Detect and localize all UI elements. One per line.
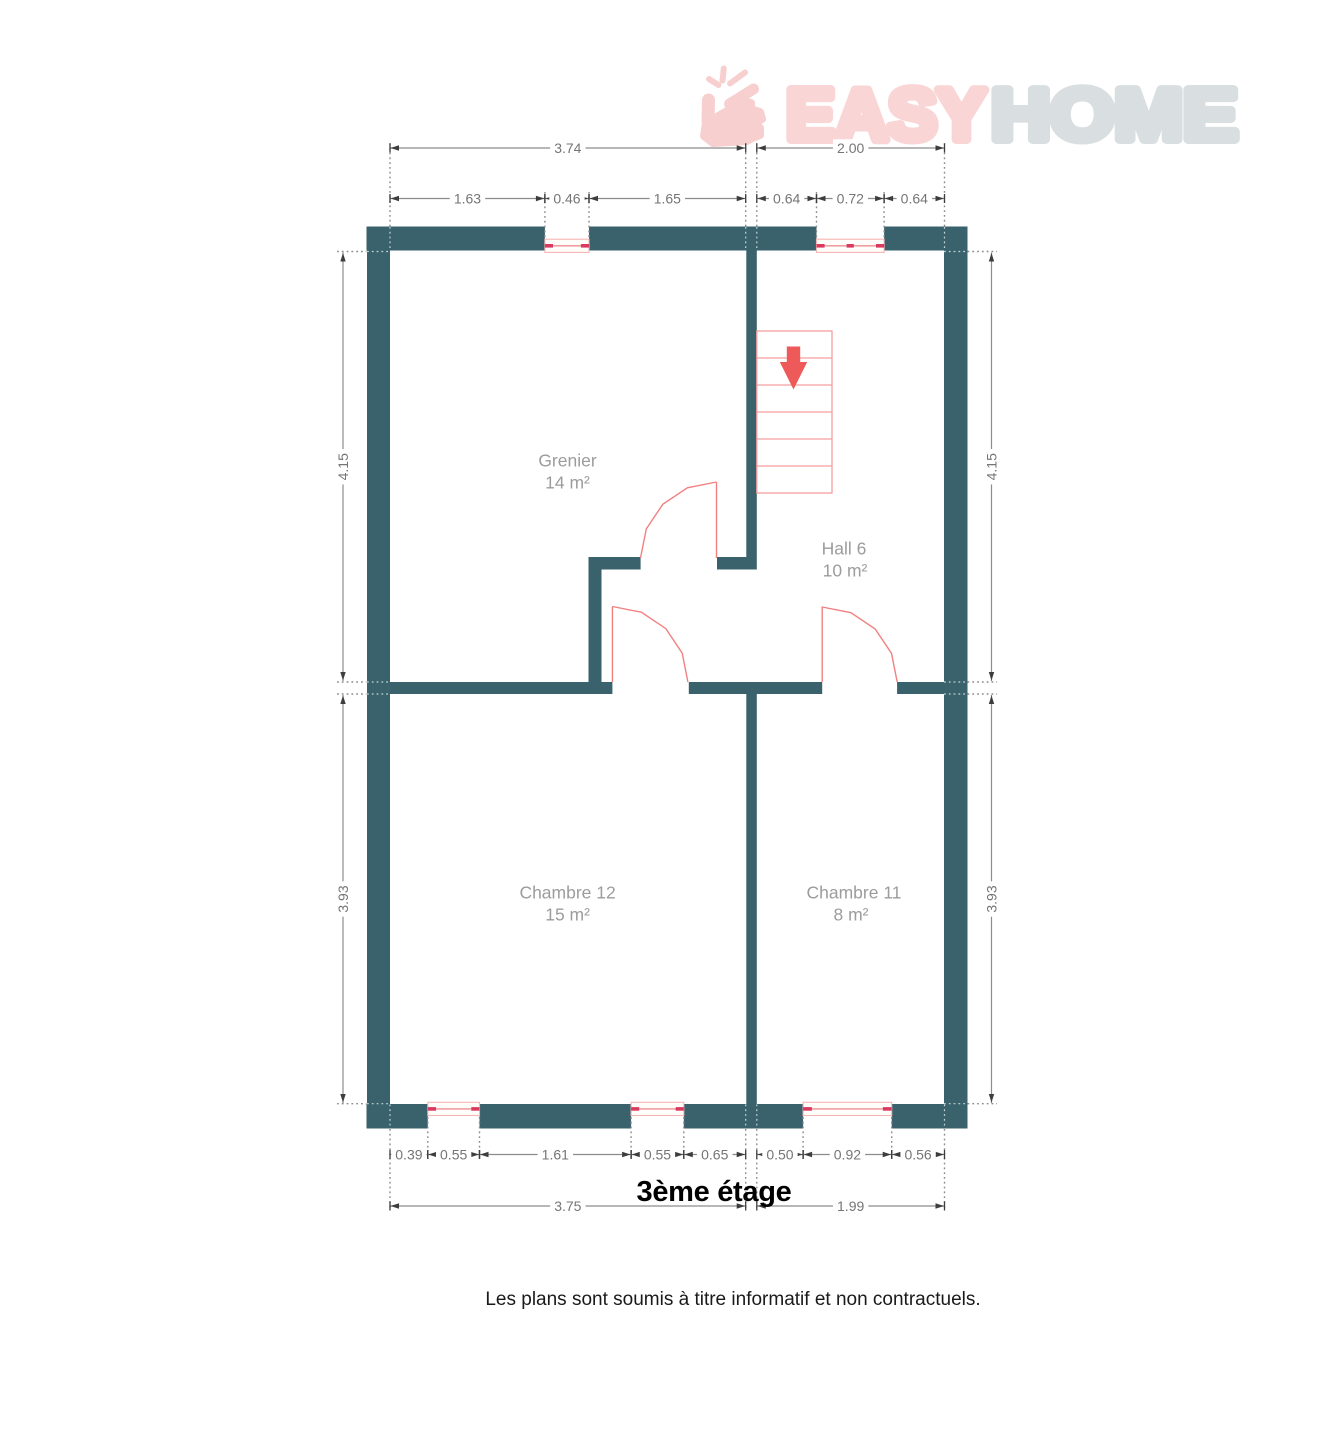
svg-text:0.55: 0.55 bbox=[440, 1147, 467, 1163]
svg-text:Chambre 11: Chambre 11 bbox=[806, 883, 901, 903]
svg-text:0.92: 0.92 bbox=[834, 1147, 861, 1163]
svg-text:0.46: 0.46 bbox=[553, 191, 580, 207]
svg-text:0.65: 0.65 bbox=[701, 1147, 728, 1163]
svg-text:0.39: 0.39 bbox=[395, 1147, 422, 1163]
svg-text:Grenier: Grenier bbox=[538, 451, 597, 471]
svg-text:4.15: 4.15 bbox=[984, 453, 1000, 480]
svg-text:1.99: 1.99 bbox=[837, 1198, 864, 1214]
svg-text:8 m²: 8 m² bbox=[834, 905, 869, 925]
svg-text:3.74: 3.74 bbox=[554, 140, 581, 156]
svg-text:3.93: 3.93 bbox=[984, 885, 1000, 912]
svg-text:0.55: 0.55 bbox=[644, 1147, 671, 1163]
svg-text:0.64: 0.64 bbox=[901, 191, 928, 207]
svg-text:3ème étage: 3ème étage bbox=[637, 1176, 792, 1208]
svg-text:15 m²: 15 m² bbox=[545, 905, 590, 925]
svg-text:14 m²: 14 m² bbox=[545, 473, 590, 493]
svg-text:4.15: 4.15 bbox=[335, 453, 351, 480]
svg-text:0.50: 0.50 bbox=[766, 1147, 793, 1163]
svg-text:0.64: 0.64 bbox=[773, 191, 800, 207]
svg-text:EASY: EASY bbox=[786, 75, 986, 155]
svg-text:3.93: 3.93 bbox=[335, 885, 351, 912]
svg-text:0.56: 0.56 bbox=[904, 1147, 931, 1163]
svg-text:1.65: 1.65 bbox=[654, 191, 681, 207]
svg-text:2.00: 2.00 bbox=[837, 140, 864, 156]
svg-text:0.72: 0.72 bbox=[837, 191, 864, 207]
svg-text:1.61: 1.61 bbox=[542, 1147, 569, 1163]
svg-text:10 m²: 10 m² bbox=[823, 561, 868, 581]
svg-text:3.75: 3.75 bbox=[554, 1198, 581, 1214]
svg-text:Les plans sont soumis à titre: Les plans sont soumis à titre informatif… bbox=[485, 1289, 980, 1310]
svg-text:HOME: HOME bbox=[991, 75, 1238, 155]
svg-text:Chambre 12: Chambre 12 bbox=[519, 883, 615, 903]
svg-text:Hall 6: Hall 6 bbox=[822, 539, 867, 559]
svg-text:1.63: 1.63 bbox=[454, 191, 481, 207]
